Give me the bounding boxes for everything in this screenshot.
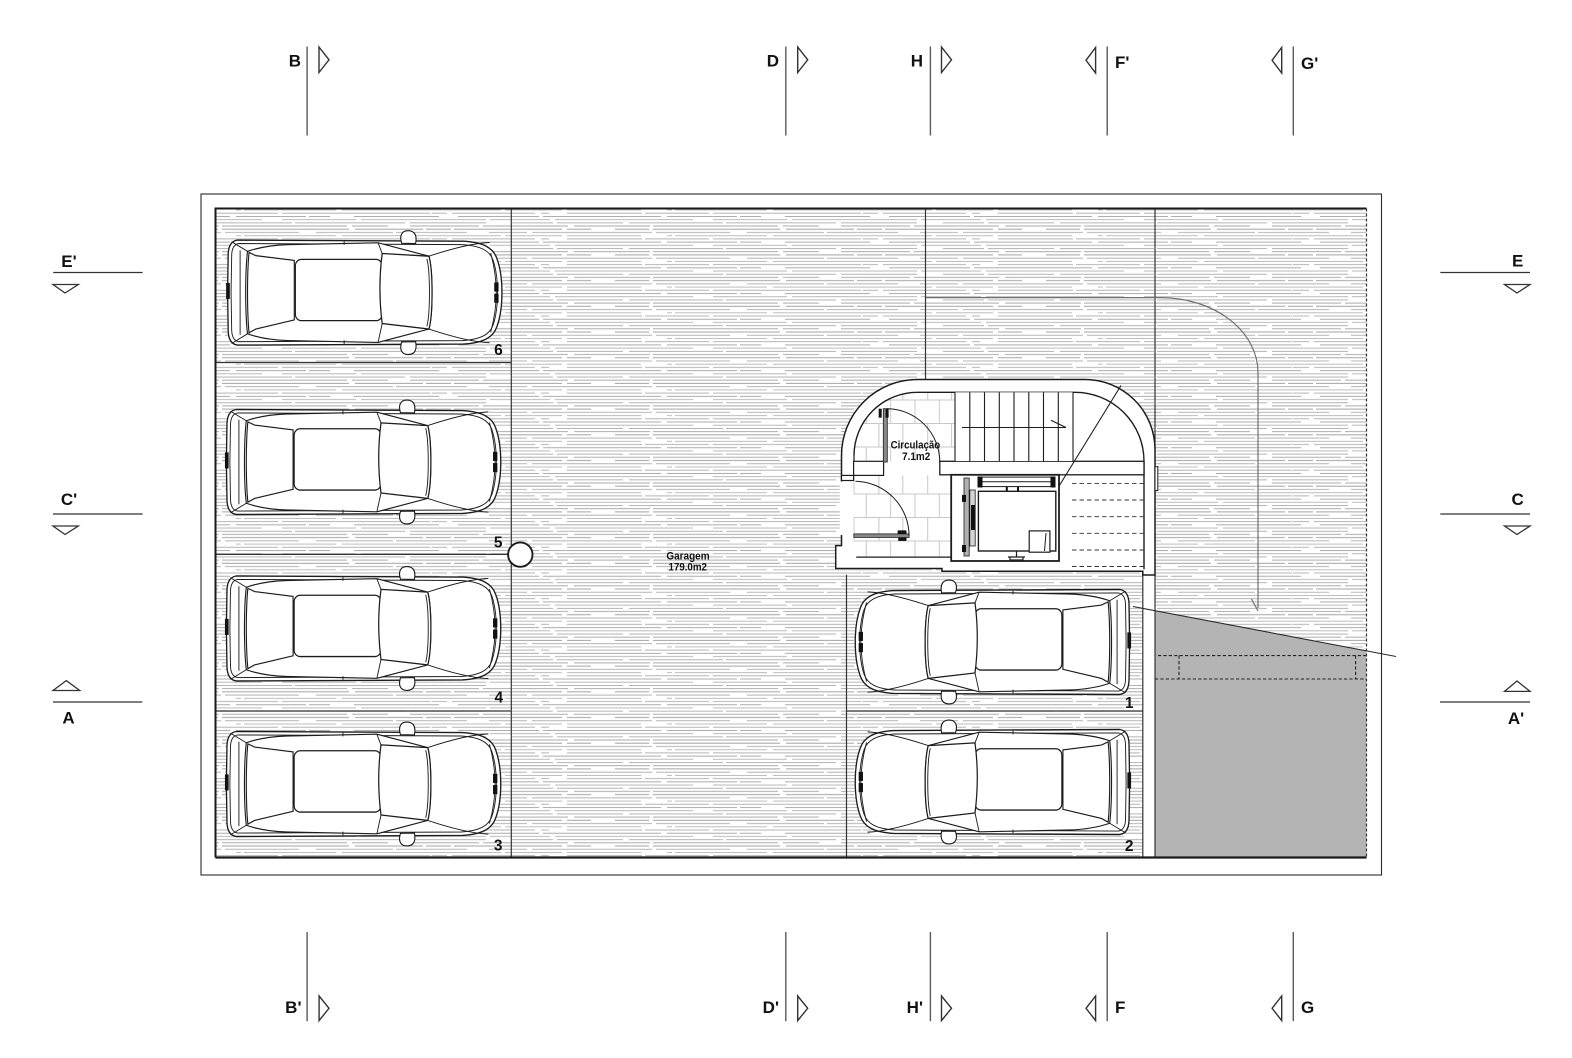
svg-text:A': A' (1508, 709, 1524, 728)
svg-text:5: 5 (494, 535, 503, 552)
svg-text:E: E (1512, 252, 1523, 271)
svg-text:3: 3 (494, 838, 503, 855)
svg-text:E': E' (61, 252, 76, 271)
svg-text:4: 4 (494, 690, 503, 707)
svg-text:D': D' (763, 998, 779, 1017)
svg-text:G': G' (1301, 54, 1318, 73)
svg-text:H': H' (907, 998, 923, 1017)
svg-text:F': F' (1115, 53, 1129, 72)
svg-text:Circulação: Circulação (891, 440, 941, 452)
svg-text:Garagem: Garagem (666, 550, 709, 562)
svg-text:G: G (1301, 998, 1314, 1017)
svg-text:A: A (62, 709, 74, 728)
svg-text:D: D (767, 52, 779, 71)
svg-text:2: 2 (1125, 838, 1134, 855)
svg-text:B': B' (285, 998, 301, 1017)
svg-text:C': C' (61, 490, 77, 509)
svg-text:B: B (289, 52, 301, 71)
svg-text:6: 6 (494, 342, 503, 359)
svg-text:H: H (911, 52, 923, 71)
svg-text:7.1m2: 7.1m2 (902, 451, 930, 463)
svg-text:F: F (1115, 998, 1125, 1017)
svg-text:1: 1 (1125, 695, 1134, 712)
svg-text:C: C (1512, 490, 1524, 509)
svg-text:179.0m2: 179.0m2 (669, 562, 707, 574)
